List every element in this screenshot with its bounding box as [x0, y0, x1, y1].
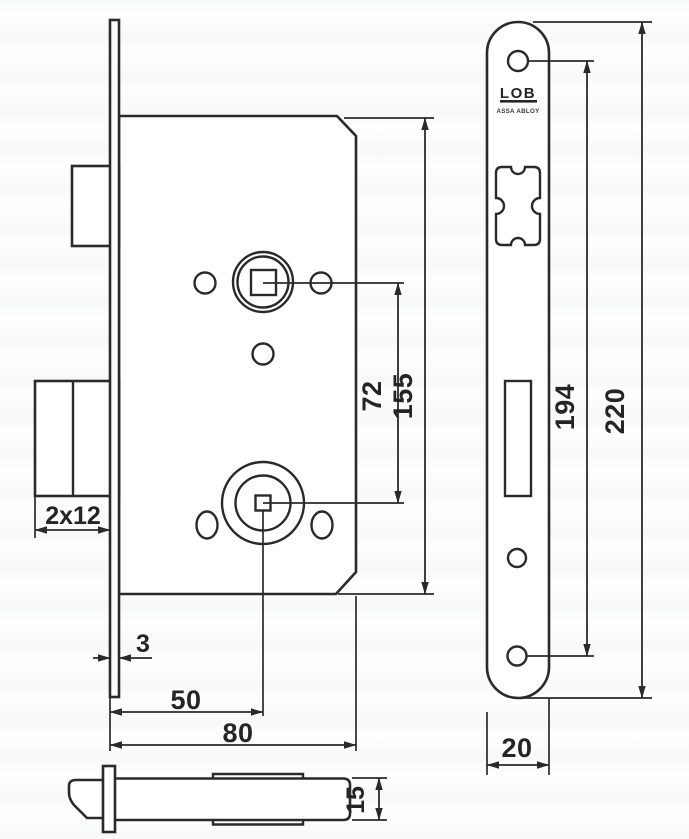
- latch-bolt-side-view: [69, 766, 350, 832]
- dim-label-latch-height: 15: [342, 786, 370, 814]
- latch-body-side: [114, 779, 350, 821]
- dim-label-faceplate-width: 20: [501, 733, 532, 763]
- dim-label-backset: 50: [170, 685, 201, 715]
- faceplate-edge-strip: [110, 20, 119, 697]
- dim-label-follower-spacing: 72: [357, 380, 387, 411]
- dim-label-deadbolt-throw: 2x12: [45, 502, 101, 530]
- lock-case-front-view: [35, 20, 404, 716]
- dim-label-faceplate-height: 220: [600, 388, 630, 435]
- faceplate-outline: [487, 22, 549, 698]
- dim-label-thickness: 3: [136, 630, 150, 658]
- logo-text: LOB: [500, 85, 536, 102]
- faceplate-front-view: LOB ASSA ABLOY: [487, 22, 549, 698]
- dim-label-screw-spacing: 194: [550, 384, 580, 431]
- logo-underline: [500, 100, 537, 103]
- logo-subtitle: ASSA ABLOY: [496, 108, 540, 115]
- faceplate-cross-section: [103, 766, 115, 832]
- mortise-lock-technical-drawing: LOB ASSA ABLOY 2x12 3 50 80: [0, 0, 689, 839]
- dim-label-body-height: 155: [388, 373, 418, 420]
- lock-body-outline: [119, 116, 356, 594]
- dim-label-body-depth: 80: [222, 718, 253, 748]
- deadbolt-front: [35, 381, 119, 496]
- lob-logo: LOB ASSA ABLOY: [496, 85, 540, 115]
